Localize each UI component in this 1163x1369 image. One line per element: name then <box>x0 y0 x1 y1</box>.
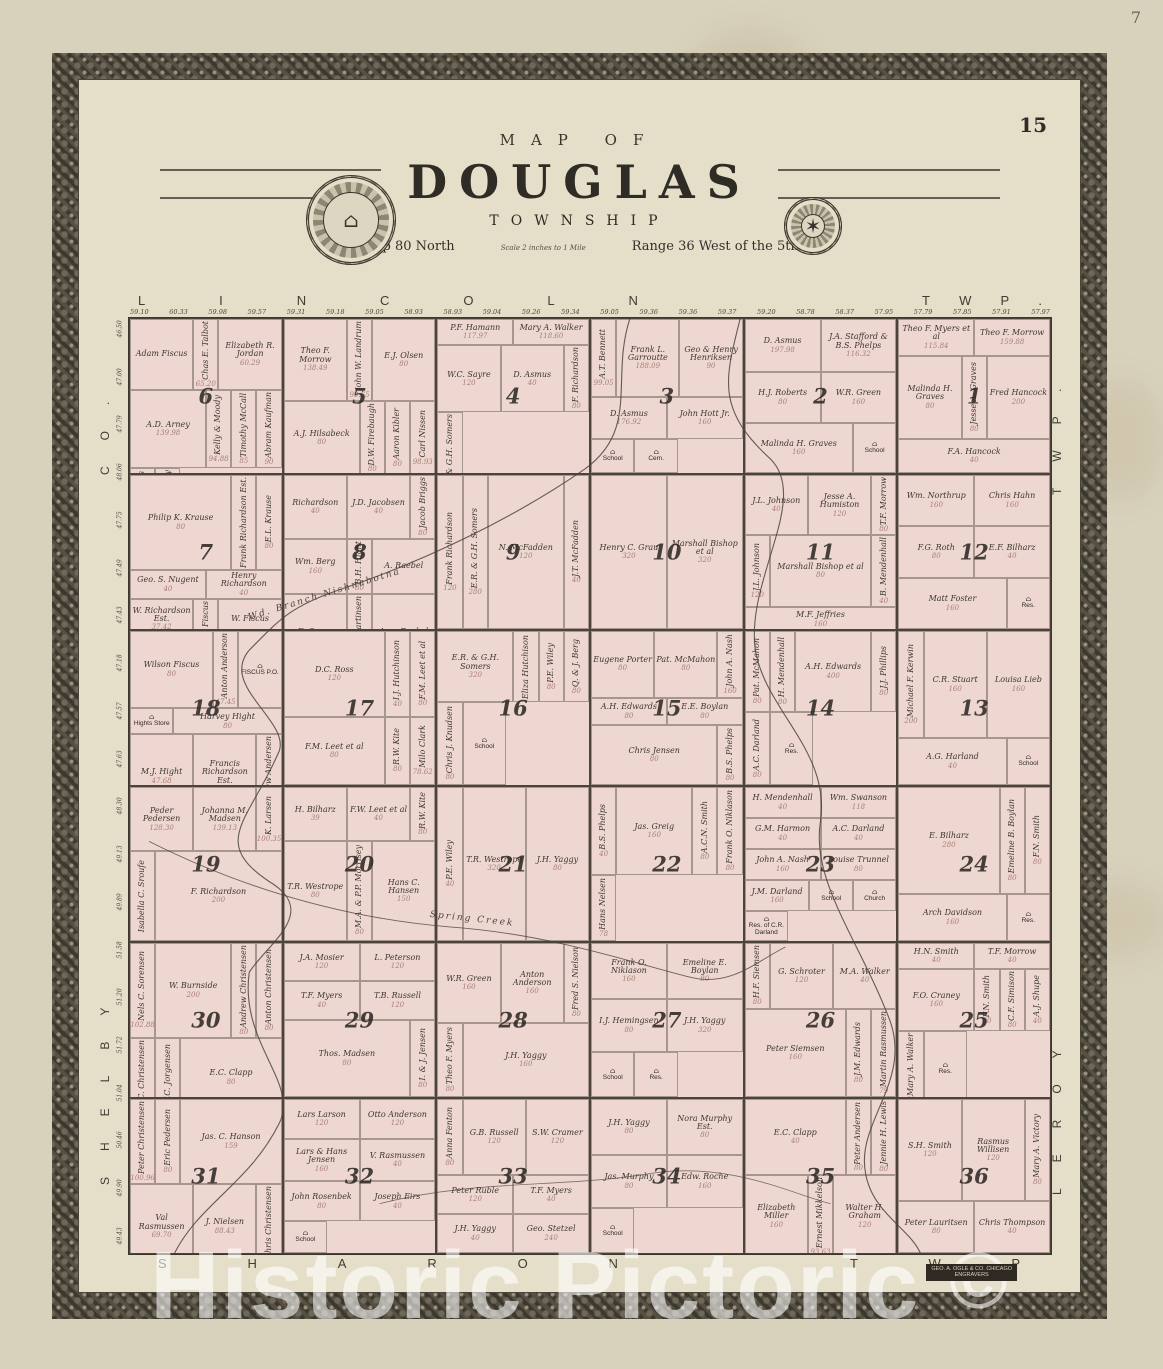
parcel: Otto Anderson120 <box>360 1099 436 1139</box>
owner-name: Q. & J. Berg <box>572 639 580 687</box>
parcel: Eric Pedersen80 <box>155 1099 180 1184</box>
section-33: Anna Fenton80G.B. Russell120S.W. Cramer1… <box>436 1098 590 1254</box>
parcel: Chris Jensen80 <box>591 725 717 785</box>
owner-name: Carl Nissen <box>419 410 427 457</box>
parcel: Elizabeth Miller160 <box>745 1175 808 1254</box>
parcel: Ernest Mikkelson93.63 <box>808 1175 833 1254</box>
acreage: 40 <box>599 850 608 858</box>
owner-name: A. Raebel <box>384 562 423 570</box>
parcel: T.R. Westrope320 <box>463 787 526 941</box>
parcel: Pat. McMahon80 <box>745 631 770 712</box>
owner-name: Elizabeth R. Jordan <box>220 342 279 359</box>
parcel: Geo & Henry Henriksen90 <box>679 319 742 397</box>
owner-name: G. Schroter <box>778 968 825 976</box>
section-10: Henry C. Grau320Marshall Bishop et al320… <box>590 474 744 630</box>
parcel: Wm. Swanson118 <box>821 787 897 818</box>
acreage: 80 <box>700 712 709 720</box>
owner-name: Elizabeth Miller <box>747 1204 806 1221</box>
owner-name: John A. Nash <box>756 856 809 864</box>
parcel: John A. Nash160 <box>717 631 742 698</box>
acreage: 80 <box>167 670 176 678</box>
parcel: Theo F. Myers et al115.84 <box>898 319 974 356</box>
parcel: E.E. Boylan80 <box>667 698 743 726</box>
acreage: 88.43 <box>215 1227 235 1235</box>
parcel: E.L. Krause80 <box>256 475 281 570</box>
parcel: Isabella C. Sroufe <box>130 851 155 941</box>
acreage: 40 <box>572 576 581 584</box>
acreage: 160 <box>930 501 943 509</box>
owner-name: Johanna M. Madsen <box>195 807 254 824</box>
owner-name: School <box>603 456 623 463</box>
owner-name: H.N. Smith <box>914 948 959 956</box>
parcel: F.O. Craney160 <box>898 969 974 1031</box>
parcel: D. Asmus40 <box>501 345 564 412</box>
parcel: Johanna M. Madsen139.13 <box>193 787 256 851</box>
acreage: 80 <box>163 1166 172 1174</box>
acreage: 80 <box>445 1159 454 1167</box>
parcel: Fred Hancock200 <box>987 356 1050 439</box>
owner-name: Peter Andersen <box>854 1102 862 1165</box>
landmark-label: ⌂Res. <box>1007 894 1050 941</box>
owner-name: Fred S. Nielson <box>572 947 580 1010</box>
owner-name: E. Bilharz <box>929 832 969 840</box>
section-14: Pat. McMahon80H. Mendenhall80A.H. Edward… <box>744 630 898 786</box>
owner-name: Jacob Briggs <box>419 477 427 529</box>
landmark-label: ⌂Res. <box>924 1031 967 1098</box>
owner-name: T.F. Morrow <box>880 477 888 525</box>
acreage: 160 <box>776 865 789 873</box>
parcel: Jacob Briggs80 <box>410 475 435 539</box>
owner-name: P.E. Wiley <box>547 643 555 683</box>
parcel: Andrew Andersen160 <box>256 734 281 786</box>
owner-name: T.R. Westrope <box>287 883 343 891</box>
acreage: 80 <box>547 683 556 691</box>
parcel: Val Rasmussen69.70 <box>130 1184 193 1254</box>
owner-name: Marshall Bishop et al <box>777 563 863 571</box>
acreage: 80 <box>982 1017 991 1025</box>
acreage: 117.97 <box>463 332 488 340</box>
acreage: 40 <box>528 379 537 387</box>
acreage: 78 <box>599 930 608 938</box>
parcel: J.L. Johnson120 <box>745 535 770 606</box>
parcel: Geo. Stetzel240 <box>513 1214 589 1253</box>
parcel: Jas. C. Hanson159 <box>180 1099 281 1184</box>
owner-name: Hans Nelsen <box>599 878 607 930</box>
owner-name: B.H. Hight <box>355 541 363 585</box>
parcel: G. Schroter120 <box>770 943 833 1009</box>
owner-name: E.J. Olsen <box>384 352 423 360</box>
parcel: S.W. Cramer120 <box>526 1099 589 1175</box>
acreage: 120 <box>391 1119 404 1127</box>
acreage: 320 <box>698 1026 711 1034</box>
owner-name: Chris Hahn <box>989 492 1035 500</box>
acreage: 160 <box>723 687 736 695</box>
acreage: 197.98 <box>770 346 795 354</box>
owner-name: John W. Landrum <box>355 321 363 391</box>
owner-name: Emeline B. Boylan <box>1008 799 1016 873</box>
acreage: 40 <box>778 803 787 811</box>
acreage: 40 <box>772 505 781 513</box>
acreage: 80 <box>368 465 377 473</box>
owner-name: Henry C. Grau <box>600 544 659 552</box>
parcel: Andrew Christensen80 <box>231 943 256 1038</box>
landmark-label: ⌂School <box>809 880 852 911</box>
parcel: Milo Clark78.62 <box>410 717 435 785</box>
parcel: Jesse A. Graves80 <box>962 356 987 439</box>
owner-name: M.J. Hight <box>141 768 182 776</box>
acreage: 160 <box>315 1165 328 1173</box>
section-grid-border: Adam FiscusChas E. Talbot65.20Elizabeth … <box>128 317 1052 1255</box>
owner-name: F.N. Smith <box>983 975 991 1017</box>
acreage: 240 <box>544 1234 557 1242</box>
acreage: 80 <box>355 584 364 592</box>
acreage: 40 <box>239 589 248 597</box>
owner-name: H.J. Roberts <box>758 389 807 397</box>
acreage: 139.13 <box>213 824 238 832</box>
acreage: 80 <box>311 891 320 899</box>
acreage: 100.96 <box>130 1174 155 1182</box>
parcel: John Rosenbek80 <box>284 1181 360 1221</box>
parcel: Aaron Kibler80 <box>385 401 410 474</box>
acreage: 120 <box>833 510 846 518</box>
acreage: 160 <box>770 896 783 904</box>
acreage: 40 <box>970 456 979 464</box>
parcel: H.J. Roberts80 <box>745 372 821 422</box>
parcel: L. Fiscus <box>193 599 218 630</box>
owner-name: Lars Larson <box>297 1111 346 1119</box>
acreage: 159.88 <box>1000 338 1025 346</box>
parcel: D. Asmus197.98 <box>745 319 821 372</box>
acreage: 80 <box>239 1028 248 1036</box>
parcel: F.G. Roth80 <box>898 526 974 577</box>
acreage: 118 <box>852 803 865 811</box>
owner-name: I.J. Hutchinson <box>393 640 401 700</box>
parcel: Hans C. Hansen150 <box>372 841 435 941</box>
parcel: B.H. Hight80 <box>347 539 372 595</box>
owner-name: J.L. Johnson <box>753 543 761 591</box>
owner-name: Cem. <box>648 456 664 463</box>
parcel: A.J. Shupe40 <box>1025 969 1050 1031</box>
parcel: Frank O. Niklason80 <box>717 787 742 875</box>
acreage: 80 <box>726 774 735 782</box>
owner-name: A.J. Shupe <box>1033 975 1041 1017</box>
parcel: Frank Richardson Est. <box>231 475 256 570</box>
parcel: I. & J. Jensen80 <box>410 1020 435 1097</box>
acreage: 320 <box>469 671 482 679</box>
acreage: 40 <box>374 814 383 822</box>
owner-name: W.C. Sayre <box>447 371 491 379</box>
acreage: 80 <box>418 699 427 707</box>
parcel: M.F. Jeffries160 <box>745 607 897 630</box>
acreage: 138.49 <box>303 364 328 372</box>
section-7: Philip K. Krause80Frank Richardson Est.E… <box>129 474 283 630</box>
acreage: 80 <box>553 864 562 872</box>
acreage: 80 <box>223 722 232 730</box>
owner-name: T.F. Myers <box>530 1187 571 1195</box>
acreage: 160 <box>648 831 661 839</box>
acreage: 120 <box>328 674 341 682</box>
parcel: Peter Siemsen160 <box>745 1009 846 1097</box>
owner-name: Henry Richardson <box>208 572 280 589</box>
acreage: 80 <box>330 751 339 759</box>
section-17: D.C. Ross120I.J. Hutchinson40F.M. Leet e… <box>283 630 437 786</box>
owner-name: L. Peterson <box>374 954 420 962</box>
landmark-label: ⌂School <box>853 423 896 473</box>
acreage: 160 <box>1005 501 1018 509</box>
owner-name: W. Fiscus <box>231 615 269 623</box>
section-20: H. Bilharz39F.W. Leet et al40R.W. Kite80… <box>283 786 437 942</box>
acreage: 80 <box>700 975 709 983</box>
acreage: 80 <box>393 460 402 468</box>
acreage: 40 <box>1008 1227 1017 1235</box>
acreage: 80 <box>399 360 408 368</box>
parcel: Henry Richardson40 <box>206 570 282 599</box>
section-36: S.H. Smith120Rasmus Willisen120Mary A. V… <box>897 1098 1051 1254</box>
parcel: E.F. Bilharz40 <box>974 526 1050 577</box>
parcel: F. Richardson80 <box>564 345 589 412</box>
owner-name: T.F. Myers <box>301 992 342 1000</box>
acreage: 47.68 <box>152 777 172 785</box>
parcel: Jesse A. Humiston120 <box>808 475 871 535</box>
parcel: E.J. Olsen80 <box>372 319 435 401</box>
acreage: 80 <box>227 1078 236 1086</box>
owner-name: D.W. Firebaugh <box>368 403 376 466</box>
owner-name: Chris Jensen <box>629 747 680 755</box>
parcel: W.R. Green160 <box>437 943 500 1023</box>
acreage: 90 <box>707 362 716 370</box>
acreage: 160 <box>948 685 961 693</box>
edge-label-twp-top: TWP. <box>922 293 1042 308</box>
acreage: 60.29 <box>240 359 260 367</box>
acreage: 120 <box>443 584 456 592</box>
owner-name: J.M. Darland <box>752 888 803 896</box>
acreage: 80 <box>854 1164 863 1172</box>
owner-name: School <box>821 896 841 903</box>
parcel: G.M. Harmon40 <box>745 818 821 849</box>
parcel: F.M. Leet et al80 <box>410 631 435 717</box>
owner-name: Mary A. Walker <box>520 324 583 332</box>
owner-name: Ernest Mikkelson <box>816 1177 824 1248</box>
title-block: MAP OF DOUGLAS TOWNSHIP Township 80 Nort… <box>78 131 1081 254</box>
parcel: Geo. S. Nugent40 <box>130 570 206 599</box>
owner-name: Chas E. Talbot <box>202 321 210 380</box>
acreage: 80 <box>418 1081 427 1089</box>
owner-name: H. Mendenhall <box>778 637 786 697</box>
owner-name: F.A. Hancock <box>948 448 1001 456</box>
owner-name: Martin Martinsen <box>355 596 363 630</box>
parcel: Martin Martinsen80 <box>347 594 372 630</box>
parcel: M.J. Hight47.68 <box>130 734 193 786</box>
acreage: 120 <box>391 1001 404 1009</box>
owner-name: Pat. McMahon <box>656 656 715 664</box>
owner-name: T.B. Russell <box>374 992 421 1000</box>
windmill-medallion-icon: ⌂ <box>306 175 396 265</box>
acreage: 160 <box>946 604 959 612</box>
parcel: W. Burnside200 <box>155 943 231 1038</box>
owner-name: I. & J. Jensen <box>419 1028 427 1081</box>
parcel: W.C. Sayre120 <box>437 345 500 412</box>
parcel: Chris Thompson40 <box>974 1201 1050 1253</box>
parcel: T.F. Morrow80 <box>871 475 896 535</box>
owner-name: F. Richardson <box>191 888 246 896</box>
parcel: Hans Nelsen78 <box>591 875 616 941</box>
owner-name: Joseph Eirs <box>374 1193 420 1201</box>
parcel: M.A. & P.P. Morrisey80 <box>347 841 372 941</box>
acreage: 139.98 <box>156 429 181 437</box>
parcel: E.C. Clapp80 <box>180 1038 281 1098</box>
owner-name: J.H. Yaggy <box>505 1052 546 1060</box>
acreage: 80 <box>726 864 735 872</box>
parcel: H. Mendenhall40 <box>745 787 821 818</box>
owner-name: W.R. Green <box>446 975 491 983</box>
parcel: B.S. Phelps80 <box>717 725 742 785</box>
owner-name: T.R. Westrope <box>466 856 522 864</box>
acreage: 120 <box>795 976 808 984</box>
acreage: 160 <box>622 975 635 983</box>
parcel: I.J. Hutchinson40 <box>385 631 410 717</box>
section-13: Michael F. Kerwin200C.R. Stuart160Louisa… <box>897 630 1051 786</box>
acreage: 65.20 <box>196 380 216 388</box>
owner-name: R.W. Kite <box>393 728 401 765</box>
owner-name: Eric Pedersen <box>164 1109 172 1166</box>
parcel: K. Larsen100.35 <box>256 787 281 851</box>
owner-name: G.M. Harmon <box>755 825 810 833</box>
parcel: John Hott Jr.160 <box>667 397 743 439</box>
parcel: T.F. Myers40 <box>513 1175 589 1214</box>
parcel: Marshall Bishop et al80 <box>770 535 871 606</box>
owner-name: C.F. Simison <box>1008 971 1016 1021</box>
owner-name: Mary A. Walker <box>907 1033 915 1096</box>
parcel: H.N. Smith40 <box>898 943 974 969</box>
acreage: 120 <box>469 1195 482 1203</box>
parcel: Fred S. Nielson80 <box>564 943 589 1023</box>
acreage: 100.35 <box>257 835 282 843</box>
owner-name: A.J. Hilsabeck <box>294 430 350 438</box>
acreage: 80 <box>618 664 627 672</box>
parcel: T.C. Jorgensen102.78 <box>155 1038 180 1098</box>
acreage: 80 <box>572 1010 581 1018</box>
owner-name: School <box>1018 761 1038 768</box>
owner-name: A.C.N. Smith <box>701 801 709 853</box>
acreage: 80 <box>1033 858 1042 866</box>
acreage: 120 <box>487 1137 500 1145</box>
acreage: 320 <box>622 552 635 560</box>
acreage: 40 <box>860 976 869 984</box>
acreage: 120 <box>858 1221 871 1229</box>
acreage: 160 <box>789 1053 802 1061</box>
edge-label-co: CO. <box>98 355 112 475</box>
parcel: J.H. Yaggy160 <box>463 1023 589 1097</box>
owner-name: Peder Pedersen <box>132 807 191 824</box>
parcel: Wm. Northrup160 <box>898 475 974 526</box>
parcel: Timothy McCall85 <box>231 390 256 468</box>
owner-name: Wm. Berg <box>295 558 335 566</box>
section-32: Lars Larson120Otto Anderson120Lars & Han… <box>283 1098 437 1254</box>
acreage: 40 <box>1008 956 1017 964</box>
owner-name: L.C. Christensen <box>138 1040 146 1098</box>
parcel: Carl Nissen98.93 <box>410 401 435 474</box>
owner-name: K. Larsen <box>265 796 273 835</box>
township-map: LINCOLN TWP. SHARON TWP CO. SHELBY TWP. … <box>98 295 1060 1273</box>
acreage: 47.45 <box>216 698 236 706</box>
parcel: Theo F. Morrow138.49 <box>284 319 347 401</box>
landmark-label: ⌂Res. <box>1007 578 1050 629</box>
owner-name: Theo F. Morrow <box>286 347 345 364</box>
owner-name: Wm. Northrup <box>907 492 966 500</box>
acreage: 80 <box>624 712 633 720</box>
parcel: F.A. Hancock40 <box>898 439 1050 473</box>
acreage: 128.30 <box>149 824 174 832</box>
owner-name: Geo & Henry Henriksen <box>681 346 740 363</box>
acreage: 160 <box>309 567 322 575</box>
owner-name: R.W. Kite <box>419 792 427 829</box>
owner-name: H. Bilharz <box>295 806 336 814</box>
section-15: Eugene Porter80Pat. McMahon80John A. Nas… <box>590 630 744 786</box>
acreage: 40 <box>879 597 888 605</box>
acreage: 120 <box>519 552 532 560</box>
owner-name: Arch Davidson <box>923 909 982 917</box>
parcel: Nels C. Sorensen102.88 <box>130 943 155 1038</box>
parcel: Emeline B. Boylan80 <box>1000 787 1025 894</box>
scale-note: Scale 2 inches to 1 Mile <box>501 244 586 252</box>
owner-name: Jas. C. Hanson <box>202 1133 261 1141</box>
acreage: 176.92 <box>617 418 642 426</box>
section-5: Theo F. Morrow138.49John W. Landrum99.65… <box>283 318 437 474</box>
acreage: 39 <box>311 814 320 822</box>
owner-name: Malinda H. Graves <box>761 440 837 448</box>
acreage: 120 <box>315 1119 328 1127</box>
acreage: 80 <box>1008 874 1017 882</box>
owner-name: Milo Clark <box>419 725 427 768</box>
owner-name: John Hott Jr. <box>680 410 730 418</box>
owner-name: Peter Lauritsen <box>905 1219 968 1227</box>
parcel: F.W. Leet et al40 <box>347 787 410 841</box>
owner-name: J.D. Jacobsen <box>352 499 405 507</box>
parcel: Lars Larson120 <box>284 1099 360 1139</box>
owner-name: M.A. & P.P. Morrisey <box>355 845 363 928</box>
acreage: 40 <box>445 880 454 888</box>
owner-name: Marshall Bishop et al <box>669 540 741 557</box>
acreage: 159 <box>224 1142 237 1150</box>
acreage: 40 <box>311 507 320 515</box>
acreage: 80 <box>925 402 934 410</box>
owner-name: Chris Thompson <box>979 1219 1045 1227</box>
parcel: Harvey Hight80 <box>173 708 281 734</box>
owner-name: J.M. Edwards <box>854 1022 862 1076</box>
owner-name: Martin Rasmussen <box>880 1011 888 1087</box>
acreage: 320 <box>698 556 711 564</box>
owner-name: Otto Anderson <box>368 1111 427 1119</box>
section-22: B.S. Phelps40Jas. Greig160A.C.N. Smith80… <box>590 786 744 942</box>
owner-name: A.H. Edwards <box>601 703 657 711</box>
acreage: 40 <box>547 1195 556 1203</box>
owner-name: Eugene Porter <box>593 656 652 664</box>
owner-name: Rasmus Willisen <box>964 1138 1023 1155</box>
owner-name: Jas. Greig <box>634 823 674 831</box>
parcel: P.E. Wiley80 <box>539 631 564 702</box>
owner-name: Andrew Christensen <box>240 945 248 1028</box>
acreage: 80 <box>445 773 454 781</box>
owner-name: W. Richardson Est. <box>132 607 191 624</box>
acreage: 160 <box>698 418 711 426</box>
owner-name: G.B. Russell <box>470 1129 519 1137</box>
owner-name: Pat. McMahon <box>753 638 761 697</box>
parcel: B.S. Phelps40 <box>591 787 616 875</box>
owner-name: Anton Christensen <box>265 949 273 1025</box>
section-31: Peter Christensen100.96Eric Pedersen80Ja… <box>129 1098 283 1254</box>
parcel: V. Rasmussen40 <box>360 1139 436 1182</box>
acreage: 99.65 <box>349 391 369 399</box>
